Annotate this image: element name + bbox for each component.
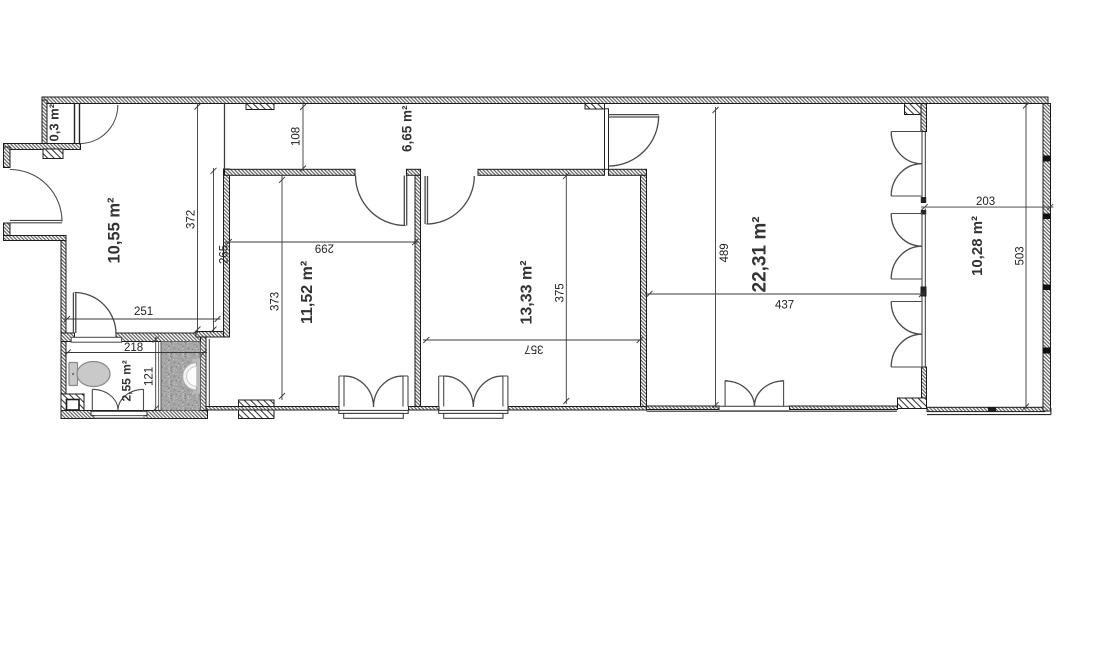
svg-text:108: 108 [291, 127, 303, 146]
svg-text:0,3 m²: 0,3 m² [47, 103, 62, 141]
svg-text:299: 299 [315, 242, 334, 254]
svg-text:13,33 m²: 13,33 m² [519, 260, 536, 324]
svg-text:121: 121 [144, 367, 156, 386]
svg-text:489: 489 [719, 243, 731, 262]
svg-text:373: 373 [270, 292, 282, 311]
svg-text:11,52 m²: 11,52 m² [299, 261, 316, 324]
svg-text:357: 357 [524, 343, 543, 355]
svg-text:437: 437 [775, 300, 794, 312]
svg-text:10,28 m²: 10,28 m² [969, 216, 986, 276]
svg-text:265: 265 [219, 245, 231, 264]
svg-text:372: 372 [186, 210, 198, 229]
svg-text:10,55 m²: 10,55 m² [106, 197, 124, 264]
svg-text:203: 203 [976, 196, 995, 208]
svg-text:218: 218 [124, 342, 143, 354]
svg-text:22,31 m²: 22,31 m² [750, 216, 771, 292]
svg-text:375: 375 [555, 283, 567, 302]
svg-text:6,65 m²: 6,65 m² [400, 105, 415, 152]
svg-text:503: 503 [1015, 246, 1027, 265]
svg-text:2,55 m²: 2,55 m² [120, 360, 134, 401]
svg-text:251: 251 [134, 306, 153, 318]
